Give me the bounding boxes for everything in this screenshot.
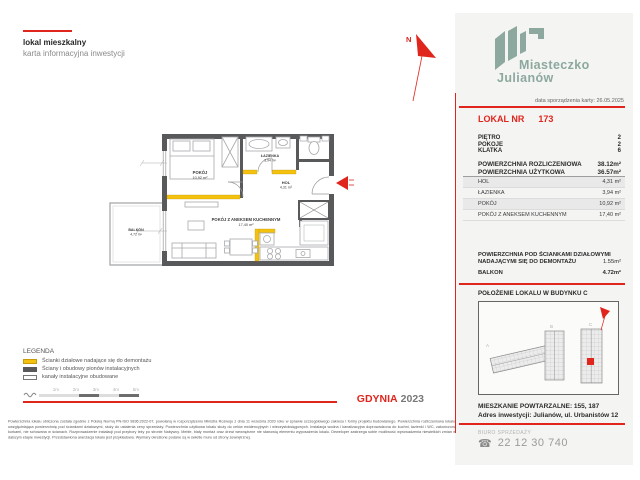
brand-name-line2: Julianów: [497, 71, 554, 85]
scale-ticks: 1m 2m 3m 4m 5m: [39, 387, 139, 392]
partition-area-block: POWIERZCHNIA POD ŚCIANKAMI DZIAŁOWYMI NA…: [478, 252, 621, 277]
entrance-arrow: [336, 176, 354, 190]
bath-area: 3,94 m²: [264, 159, 276, 163]
scale-segment: [79, 394, 99, 397]
scale-break-squiggle: [23, 391, 39, 399]
area-row: POWIERZCHNIA ROZLICZENIOWA38.12m²: [478, 161, 621, 169]
north-label: N: [406, 35, 411, 44]
north-arrow: N: [406, 34, 436, 101]
building-b: B: [545, 324, 564, 380]
partition-label-line1: POWIERZCHNIA POD ŚCIANKAMI DZIAŁOWYMI: [478, 252, 621, 259]
north-arrow-head: [416, 34, 436, 58]
scale-bar: 1m 2m 3m 4m 5m: [23, 387, 143, 397]
phone-number[interactable]: 22 12 30 740: [498, 437, 568, 449]
toilet: [308, 137, 320, 155]
sofa: [172, 243, 216, 258]
scale-tick: 1m: [39, 387, 59, 392]
legend-swatch-yellow: [23, 359, 37, 364]
door-swings: [228, 158, 329, 197]
sales-office-label: BIURO SPRZEDAŻY: [478, 430, 531, 436]
scale-segment: [59, 394, 79, 397]
hall-label: HOL: [282, 180, 291, 185]
city-label: GDYNIA: [357, 393, 398, 405]
rooms-table: HOL4,31 m² ŁAZIENKA3,94 m² POKÓJ10,92 m²…: [463, 176, 625, 221]
coffee-table: [188, 221, 204, 230]
bedroom-area: 10,92 m²: [193, 176, 209, 180]
legend-item: Ścianki działowe nadające się do demonta…: [23, 358, 151, 364]
bath-label: ŁAZIENKA: [261, 154, 280, 158]
table-row: POKÓJ10,92 m²: [463, 199, 625, 210]
city-year: GDYNIA2023: [320, 393, 424, 405]
bathtub: [246, 137, 272, 151]
legend-swatch-dark: [23, 367, 37, 372]
header-accent-rule: [23, 30, 72, 32]
scale-segment: [39, 394, 59, 397]
disclaimer: Powierzchnia lokalu obliczona została zg…: [8, 419, 456, 445]
dining-table: [225, 239, 258, 255]
washer-boiler: [260, 233, 274, 245]
legend-label: Ściany i obudowy pionów instalacyjnych: [42, 366, 140, 372]
installation-shaft: [299, 201, 329, 219]
svg-text:C: C: [589, 322, 593, 327]
phone-row[interactable]: ☎ 22 12 30 740: [478, 437, 568, 449]
building-a: A: [486, 343, 549, 373]
wardrobe: [222, 137, 238, 167]
unit-attributes: PIĘTRO2 POKOJE2 KLATKA6: [478, 135, 621, 155]
kitchen-counter: [260, 247, 328, 260]
scale-tick: 3m: [79, 387, 99, 392]
table-row: POKÓJ Z ANEKSEM KUCHENNYM17,40 m²: [463, 210, 625, 221]
siteplan-north-arrow: [600, 307, 610, 330]
area-summary: POWIERZCHNIA ROZLICZENIOWA38.12m² POWIER…: [478, 161, 621, 176]
attribute-row: KLATKA6: [478, 148, 621, 155]
phone-icon: ☎: [478, 438, 492, 449]
unit-label: LOKAL NR: [478, 114, 524, 124]
bedroom-label: POKÓJ: [193, 170, 208, 175]
location-title: POŁOŻENIE LOKALU W BUDYNKU C: [478, 290, 588, 297]
scale-tick: 4m: [99, 387, 119, 392]
legend-swatch-outline: [23, 375, 37, 380]
legend-item: kanały instalacyjne obudowane: [23, 374, 151, 380]
balcony-area: 4,72 m²: [130, 233, 142, 237]
scale-segment: [99, 394, 119, 397]
living-label: POKÓJ Z ANEKSEM KUCHENNYM: [212, 217, 281, 222]
partition-label-line2: NADAJĄCYMI SIĘ DO DEMONTAŻU1.55m²: [478, 259, 621, 266]
repeat-units-line: MIESZKANIE POWTARZALNE: 155, 187: [478, 403, 599, 410]
year-label: 2023: [401, 393, 424, 405]
north-arrow-shaft: [413, 56, 422, 101]
accent-rule: [459, 283, 625, 285]
site-plan-box: A B C: [478, 301, 619, 395]
living-area: 17,40 m²: [239, 223, 255, 227]
legend-label: Ścianki działowe nadające się do demonta…: [42, 358, 151, 364]
balkon-row: BALKON4.72m²: [478, 270, 621, 277]
scale-tick: 5m: [119, 387, 139, 392]
scale-segment: [119, 394, 139, 397]
area-row: POWIERZCHNIA UŻYTKOWA36.57m²: [478, 169, 621, 177]
disclaimer-text: Powierzchnia lokalu obliczona została zg…: [8, 419, 456, 440]
investment-address: Adres inwestycji: Julianów, ul. Urbanist…: [478, 412, 618, 419]
legend-label: kanały instalacyjne obudowane: [42, 374, 118, 380]
building-c: C: [581, 322, 602, 383]
scale-tick: 2m: [59, 387, 79, 392]
legend-item: Ściany i obudowy pionów instalacyjnych: [23, 366, 151, 372]
unit-number: 173: [538, 114, 553, 124]
svg-text:B: B: [550, 324, 553, 329]
footer-accent-rule: [23, 401, 337, 403]
table-row: HOL4,31 m²: [463, 177, 625, 188]
unit-number-heading: LOKAL NR173: [478, 114, 553, 124]
info-panel: Miasteczko Julianów data sporządzenia ka…: [455, 13, 633, 465]
investment-card: lokal mieszkalny karta informacyjna inwe…: [0, 0, 640, 480]
legend-title: LEGENDA: [23, 348, 151, 355]
accent-rule: [459, 106, 625, 108]
washbasin: [276, 137, 290, 148]
tv-sideboard: [185, 202, 218, 207]
brand-name-line1: Miasteczko: [519, 58, 590, 72]
panel-separator-rule: [455, 93, 456, 433]
floorplan: N: [100, 25, 450, 310]
accent-rule: [459, 423, 625, 425]
tall-cabinet: [300, 221, 328, 245]
hall-area: 4,31 m²: [280, 186, 293, 190]
balcony-label: BALKON: [128, 228, 144, 232]
legend: LEGENDA Ścianki działowe nadające się do…: [23, 348, 151, 397]
card-date: data sporządzenia karty: 26.05.2025: [535, 98, 624, 104]
window-bedroom: [162, 151, 167, 176]
unit-location-marker: [587, 358, 594, 365]
site-plan: A B C: [479, 302, 618, 394]
table-row: ŁAZIENKA3,94 m²: [463, 188, 625, 199]
svg-text:A: A: [486, 343, 489, 348]
